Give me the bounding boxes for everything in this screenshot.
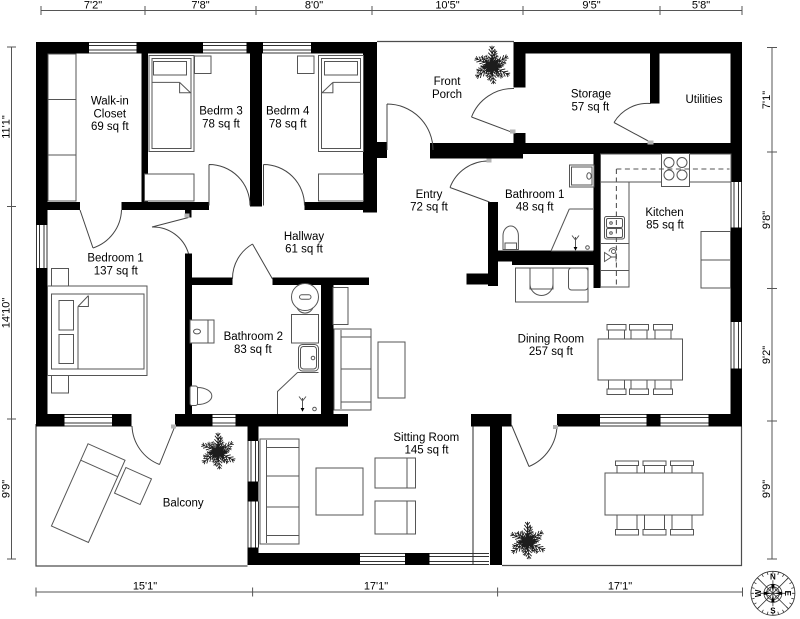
svg-text:11'1": 11'1" bbox=[1, 115, 13, 139]
svg-text:9'2": 9'2" bbox=[761, 346, 773, 364]
svg-text:7'1": 7'1" bbox=[761, 91, 773, 109]
svg-text:9'9": 9'9" bbox=[1, 480, 13, 498]
svg-text:7'2": 7'2" bbox=[84, 0, 102, 12]
svg-text:137 sq ft: 137 sq ft bbox=[94, 265, 139, 277]
svg-text:5'8": 5'8" bbox=[692, 0, 710, 12]
svg-text:Bedroom 1: Bedroom 1 bbox=[87, 253, 143, 265]
svg-text:Kitchen: Kitchen bbox=[645, 207, 683, 219]
svg-text:78 sq ft: 78 sq ft bbox=[202, 119, 241, 131]
svg-text:17'1": 17'1" bbox=[364, 581, 388, 593]
svg-text:Front: Front bbox=[434, 76, 462, 88]
svg-text:9'9": 9'9" bbox=[761, 480, 773, 498]
svg-text:Closet: Closet bbox=[93, 108, 126, 120]
svg-text:15'1": 15'1" bbox=[133, 581, 157, 593]
svg-text:78 sq ft: 78 sq ft bbox=[269, 119, 308, 131]
svg-text:72 sq ft: 72 sq ft bbox=[410, 202, 449, 214]
svg-text:Entry: Entry bbox=[416, 189, 443, 201]
svg-text:257 sq ft: 257 sq ft bbox=[529, 346, 574, 358]
svg-text:9'8": 9'8" bbox=[761, 211, 773, 229]
svg-text:10'5": 10'5" bbox=[435, 0, 459, 12]
svg-text:7'8": 7'8" bbox=[191, 0, 209, 12]
svg-text:Bedrm 4: Bedrm 4 bbox=[266, 105, 310, 117]
svg-text:9'5": 9'5" bbox=[582, 0, 600, 12]
svg-text:Sitting Room: Sitting Room bbox=[393, 432, 459, 444]
svg-text:61 sq ft: 61 sq ft bbox=[285, 243, 324, 255]
svg-text:14'10": 14'10" bbox=[1, 298, 13, 329]
svg-text:145 sq ft: 145 sq ft bbox=[404, 445, 449, 457]
svg-text:Bathroom 2: Bathroom 2 bbox=[224, 331, 283, 343]
svg-text:E: E bbox=[783, 591, 792, 597]
svg-text:S: S bbox=[770, 606, 776, 615]
svg-text:Bathroom 1: Bathroom 1 bbox=[505, 189, 564, 201]
svg-text:8'0": 8'0" bbox=[305, 0, 323, 12]
svg-text:W: W bbox=[754, 589, 763, 597]
svg-text:83 sq ft: 83 sq ft bbox=[234, 344, 273, 356]
svg-text:N: N bbox=[770, 572, 776, 581]
svg-text:Utilities: Utilities bbox=[685, 94, 722, 106]
svg-text:Balcony: Balcony bbox=[163, 498, 204, 510]
svg-text:85 sq ft: 85 sq ft bbox=[646, 220, 685, 232]
svg-text:17'1": 17'1" bbox=[608, 581, 632, 593]
svg-text:Walk-in: Walk-in bbox=[91, 96, 129, 108]
svg-text:Porch: Porch bbox=[432, 89, 462, 101]
svg-text:57 sq ft: 57 sq ft bbox=[572, 102, 611, 114]
svg-text:Storage: Storage bbox=[571, 89, 611, 101]
svg-text:Dining Room: Dining Room bbox=[518, 333, 584, 345]
svg-text:48 sq ft: 48 sq ft bbox=[516, 202, 555, 214]
svg-text:Bedrm 3: Bedrm 3 bbox=[199, 105, 242, 117]
svg-text:Hallway: Hallway bbox=[284, 231, 325, 243]
svg-text:69 sq ft: 69 sq ft bbox=[91, 121, 130, 133]
